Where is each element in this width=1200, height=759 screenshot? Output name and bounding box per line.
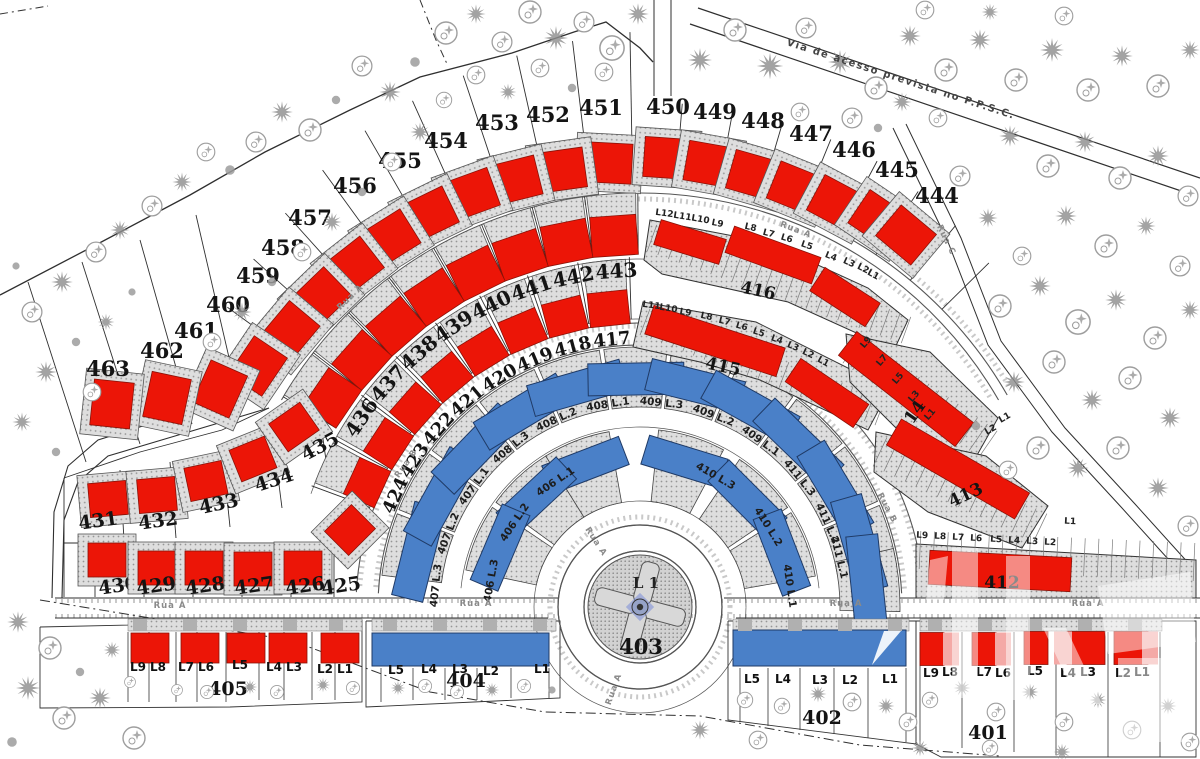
tree-outline-icon — [352, 56, 372, 76]
svg-text:L1: L1 — [337, 662, 353, 676]
tree-outline-icon — [1147, 75, 1169, 97]
svg-text:L2: L2 — [1044, 538, 1057, 549]
tree-burst-icon — [391, 681, 405, 695]
tree-outline-icon — [774, 698, 789, 713]
tree-burst-icon — [51, 271, 73, 293]
tree-outline-icon — [53, 707, 75, 729]
site-plan: 4514524534544554564574584594604614624634… — [0, 0, 1200, 759]
svg-text:L1: L1 — [997, 411, 1012, 426]
tree-burst-icon — [271, 101, 293, 123]
tree-outline-icon — [842, 108, 862, 128]
tree-outline-icon — [246, 132, 266, 152]
tree-burst-icon — [690, 720, 709, 739]
svg-text:463: 463 — [86, 356, 130, 381]
tree-outline-icon — [172, 685, 183, 696]
svg-text:L4: L4 — [421, 662, 437, 676]
tree-outline-icon — [436, 92, 451, 107]
tree-burst-icon — [35, 361, 57, 383]
tree-burst-icon — [1136, 216, 1155, 235]
tree-burst-icon — [1147, 145, 1169, 167]
tree-burst-icon — [899, 25, 921, 47]
svg-text:453: 453 — [475, 110, 519, 135]
svg-text:426: 426 — [284, 572, 326, 599]
tree-outline-icon — [200, 685, 213, 698]
svg-text:449: 449 — [693, 99, 737, 124]
svg-text:L6: L6 — [198, 660, 214, 674]
tree-outline-icon — [843, 693, 861, 711]
tree-outline-icon — [987, 703, 1005, 721]
tree-burst-icon — [500, 84, 517, 101]
tree-outline-icon — [39, 637, 61, 659]
svg-text:L9: L9 — [923, 666, 939, 680]
roundabout-hub-label: L 1 — [633, 574, 659, 592]
tree-outline-icon — [935, 59, 957, 81]
svg-text:428: 428 — [184, 572, 226, 599]
tree-outline-icon — [1055, 713, 1073, 731]
tree-burst-icon — [1180, 300, 1199, 319]
tree-outline-icon — [22, 302, 42, 322]
lot-403-number: 403 — [619, 634, 663, 659]
tree-outline-icon — [270, 685, 283, 698]
svg-text:L9: L9 — [711, 218, 725, 230]
svg-text:429: 429 — [135, 572, 177, 599]
tree-burst-icon — [16, 676, 40, 700]
tree-outline-icon — [600, 36, 624, 60]
tree-outline-icon — [574, 12, 594, 32]
svg-text:L4: L4 — [266, 660, 282, 674]
tree-burst-icon — [316, 678, 330, 692]
tree-dot-icon — [7, 737, 17, 747]
svg-text:462: 462 — [140, 338, 184, 363]
tree-dot-icon — [874, 124, 882, 132]
tree-outline-icon — [1043, 351, 1065, 373]
tree-outline-icon — [492, 32, 512, 52]
svg-text:Rua A: Rua A — [460, 599, 493, 609]
tree-outline-icon — [791, 103, 809, 121]
svg-text:L8: L8 — [150, 660, 166, 674]
svg-text:405: 405 — [208, 678, 248, 700]
tree-burst-icon — [1074, 131, 1096, 153]
tree-burst-icon — [1067, 457, 1089, 479]
svg-text:431: 431 — [77, 507, 119, 534]
tree-outline-icon — [346, 681, 359, 694]
svg-text:L7: L7 — [976, 665, 992, 679]
tree-burst-icon — [878, 698, 895, 715]
tree-dot-icon — [972, 422, 980, 430]
svg-text:456: 456 — [333, 173, 377, 198]
tree-burst-icon — [892, 92, 911, 111]
tree-outline-icon — [1027, 437, 1049, 459]
tree-outline-icon — [1170, 256, 1190, 276]
tree-dot-icon — [72, 338, 80, 346]
tree-outline-icon — [450, 685, 463, 698]
tree-burst-icon — [1081, 389, 1103, 411]
tree-burst-icon — [912, 740, 929, 757]
svg-text:432: 432 — [137, 507, 179, 534]
tree-dot-icon — [225, 165, 235, 175]
svg-text:445: 445 — [875, 157, 919, 182]
svg-text:L3: L3 — [812, 673, 828, 687]
svg-text:Rua A: Rua A — [154, 601, 187, 611]
via-access-label: Via de acesso prevista no P.P.S.C. — [785, 37, 1016, 121]
tree-dot-icon — [268, 278, 276, 286]
svg-text:L4: L4 — [1008, 536, 1021, 547]
tree-outline-icon — [724, 19, 746, 41]
svg-text:L10: L10 — [690, 214, 710, 227]
svg-text:L8: L8 — [934, 532, 947, 543]
svg-text:L5: L5 — [232, 658, 248, 672]
svg-text:L3: L3 — [1026, 537, 1039, 548]
tree-burst-icon — [982, 4, 999, 21]
tree-burst-icon — [688, 48, 712, 72]
tree-outline-icon — [1144, 327, 1166, 349]
tree-outline-icon — [519, 1, 541, 23]
tree-outline-icon — [125, 677, 136, 688]
svg-text:448: 448 — [741, 108, 785, 133]
svg-text:L9: L9 — [916, 531, 929, 542]
tree-outline-icon — [203, 333, 221, 351]
tree-outline-icon — [737, 692, 752, 707]
tree-outline-icon — [418, 679, 431, 692]
tree-burst-icon — [969, 29, 991, 51]
svg-text:L1: L1 — [1064, 517, 1077, 528]
tree-outline-icon — [950, 166, 970, 186]
svg-text:L12: L12 — [655, 208, 674, 220]
tree-outline-icon — [1055, 7, 1073, 25]
svg-text:451: 451 — [579, 95, 623, 120]
svg-text:L4: L4 — [775, 672, 791, 686]
svg-text:L7: L7 — [178, 660, 194, 674]
tree-burst-icon — [7, 611, 29, 633]
tree-burst-icon — [544, 26, 568, 50]
tree-outline-icon — [142, 196, 162, 216]
tree-burst-icon — [379, 81, 401, 103]
tree-outline-icon — [1037, 155, 1059, 177]
tree-outline-icon — [865, 77, 887, 99]
svg-text:444: 444 — [915, 183, 959, 208]
svg-text:L2: L2 — [842, 673, 858, 687]
tree-burst-icon — [1040, 38, 1064, 62]
tree-burst-icon — [12, 412, 31, 431]
tree-outline-icon — [922, 692, 937, 707]
tree-burst-icon — [110, 220, 129, 239]
tree-burst-icon — [466, 4, 485, 23]
svg-text:L5: L5 — [388, 663, 404, 677]
svg-text:Rua A: Rua A — [1072, 599, 1105, 609]
svg-text:446: 446 — [832, 137, 876, 162]
svg-text:452: 452 — [526, 102, 570, 127]
tree-dot-icon — [568, 84, 576, 92]
svg-text:L7: L7 — [952, 533, 965, 544]
tree-burst-icon — [89, 687, 111, 709]
tree-outline-icon — [989, 295, 1011, 317]
tree-dot-icon — [410, 57, 420, 67]
tree-outline-icon — [197, 143, 215, 161]
tree-outline-icon — [383, 153, 401, 171]
svg-text:L9: L9 — [679, 307, 693, 319]
svg-text:443: 443 — [595, 257, 638, 284]
tree-burst-icon — [1029, 275, 1051, 297]
tree-outline-icon — [796, 18, 816, 38]
tree-outline-icon — [1119, 367, 1141, 389]
tree-outline-icon — [299, 119, 321, 141]
tree-burst-icon — [810, 686, 827, 703]
tree-burst-icon — [1003, 371, 1025, 393]
tree-outline-icon — [1095, 235, 1117, 257]
tree-burst-icon — [999, 125, 1021, 147]
site-plan-svg: 4514524534544554564574584594604614624634… — [0, 0, 1200, 759]
tree-burst-icon — [1111, 45, 1133, 67]
tree-outline-icon — [83, 383, 101, 401]
tree-outline-icon — [999, 461, 1017, 479]
svg-text:L9: L9 — [130, 660, 146, 674]
tree-outline-icon — [1013, 247, 1031, 265]
svg-text:L4: L4 — [823, 250, 838, 264]
tree-outline-icon — [916, 1, 934, 19]
tree-dot-icon — [548, 686, 555, 693]
tree-burst-icon — [1147, 477, 1169, 499]
tree-outline-icon — [531, 59, 549, 77]
svg-text:L3: L3 — [286, 660, 302, 674]
tree-burst-icon — [1055, 205, 1077, 227]
tree-outline-icon — [123, 727, 145, 749]
svg-text:L6: L6 — [970, 534, 983, 545]
tree-dot-icon — [128, 288, 135, 295]
tree-burst-icon — [172, 172, 191, 191]
svg-text:L5: L5 — [744, 672, 760, 686]
tree-burst-icon — [1159, 407, 1181, 429]
tree-dot-icon — [12, 262, 19, 269]
svg-text:402: 402 — [802, 707, 842, 729]
tree-burst-icon — [978, 208, 997, 227]
tree-outline-icon — [1005, 69, 1027, 91]
svg-text:L1: L1 — [534, 662, 550, 676]
lot-402: L5L4L3L2L1402 — [728, 619, 916, 744]
tree-burst-icon — [104, 642, 121, 659]
tree-outline-icon — [1107, 437, 1129, 459]
tree-burst-icon — [1180, 40, 1199, 59]
tree-burst-icon — [98, 314, 115, 331]
svg-text:457: 457 — [288, 205, 332, 230]
svg-text:447: 447 — [789, 121, 833, 146]
tree-outline-icon — [467, 66, 485, 84]
svg-text:L11: L11 — [673, 211, 693, 224]
tree-outline-icon — [1109, 167, 1131, 189]
svg-text:L2: L2 — [317, 662, 333, 676]
tree-outline-icon — [749, 731, 767, 749]
tree-outline-icon — [899, 713, 917, 731]
tree-outline-icon — [1178, 186, 1198, 206]
tree-outline-icon — [517, 679, 530, 692]
tree-outline-icon — [1066, 310, 1090, 334]
tree-outline-icon — [1178, 516, 1198, 536]
svg-text:425: 425 — [320, 572, 362, 599]
svg-text:Rua A: Rua A — [830, 599, 863, 609]
tree-outline-icon — [595, 63, 613, 81]
tree-burst-icon — [1105, 289, 1127, 311]
svg-text:L5: L5 — [990, 535, 1003, 546]
svg-text:427: 427 — [233, 572, 275, 599]
tree-outline-icon — [435, 22, 457, 44]
tree-dot-icon — [332, 96, 340, 104]
tree-outline-icon — [1077, 79, 1099, 101]
tree-outline-icon — [293, 243, 311, 261]
svg-text:450: 450 — [646, 94, 690, 119]
tree-burst-icon — [757, 53, 783, 79]
svg-text:L3: L3 — [841, 256, 856, 270]
tree-outline-icon — [982, 740, 997, 755]
tree-burst-icon — [627, 3, 649, 25]
tree-burst-icon — [485, 683, 499, 697]
tree-dot-icon — [76, 668, 84, 676]
tree-outline-icon — [1181, 733, 1199, 751]
tree-dot-icon — [358, 188, 366, 196]
tree-dot-icon — [52, 448, 60, 456]
svg-text:L1: L1 — [882, 672, 898, 686]
tree-outline-icon — [86, 242, 106, 262]
tree-outline-icon — [929, 109, 947, 127]
svg-text:454: 454 — [424, 128, 468, 153]
